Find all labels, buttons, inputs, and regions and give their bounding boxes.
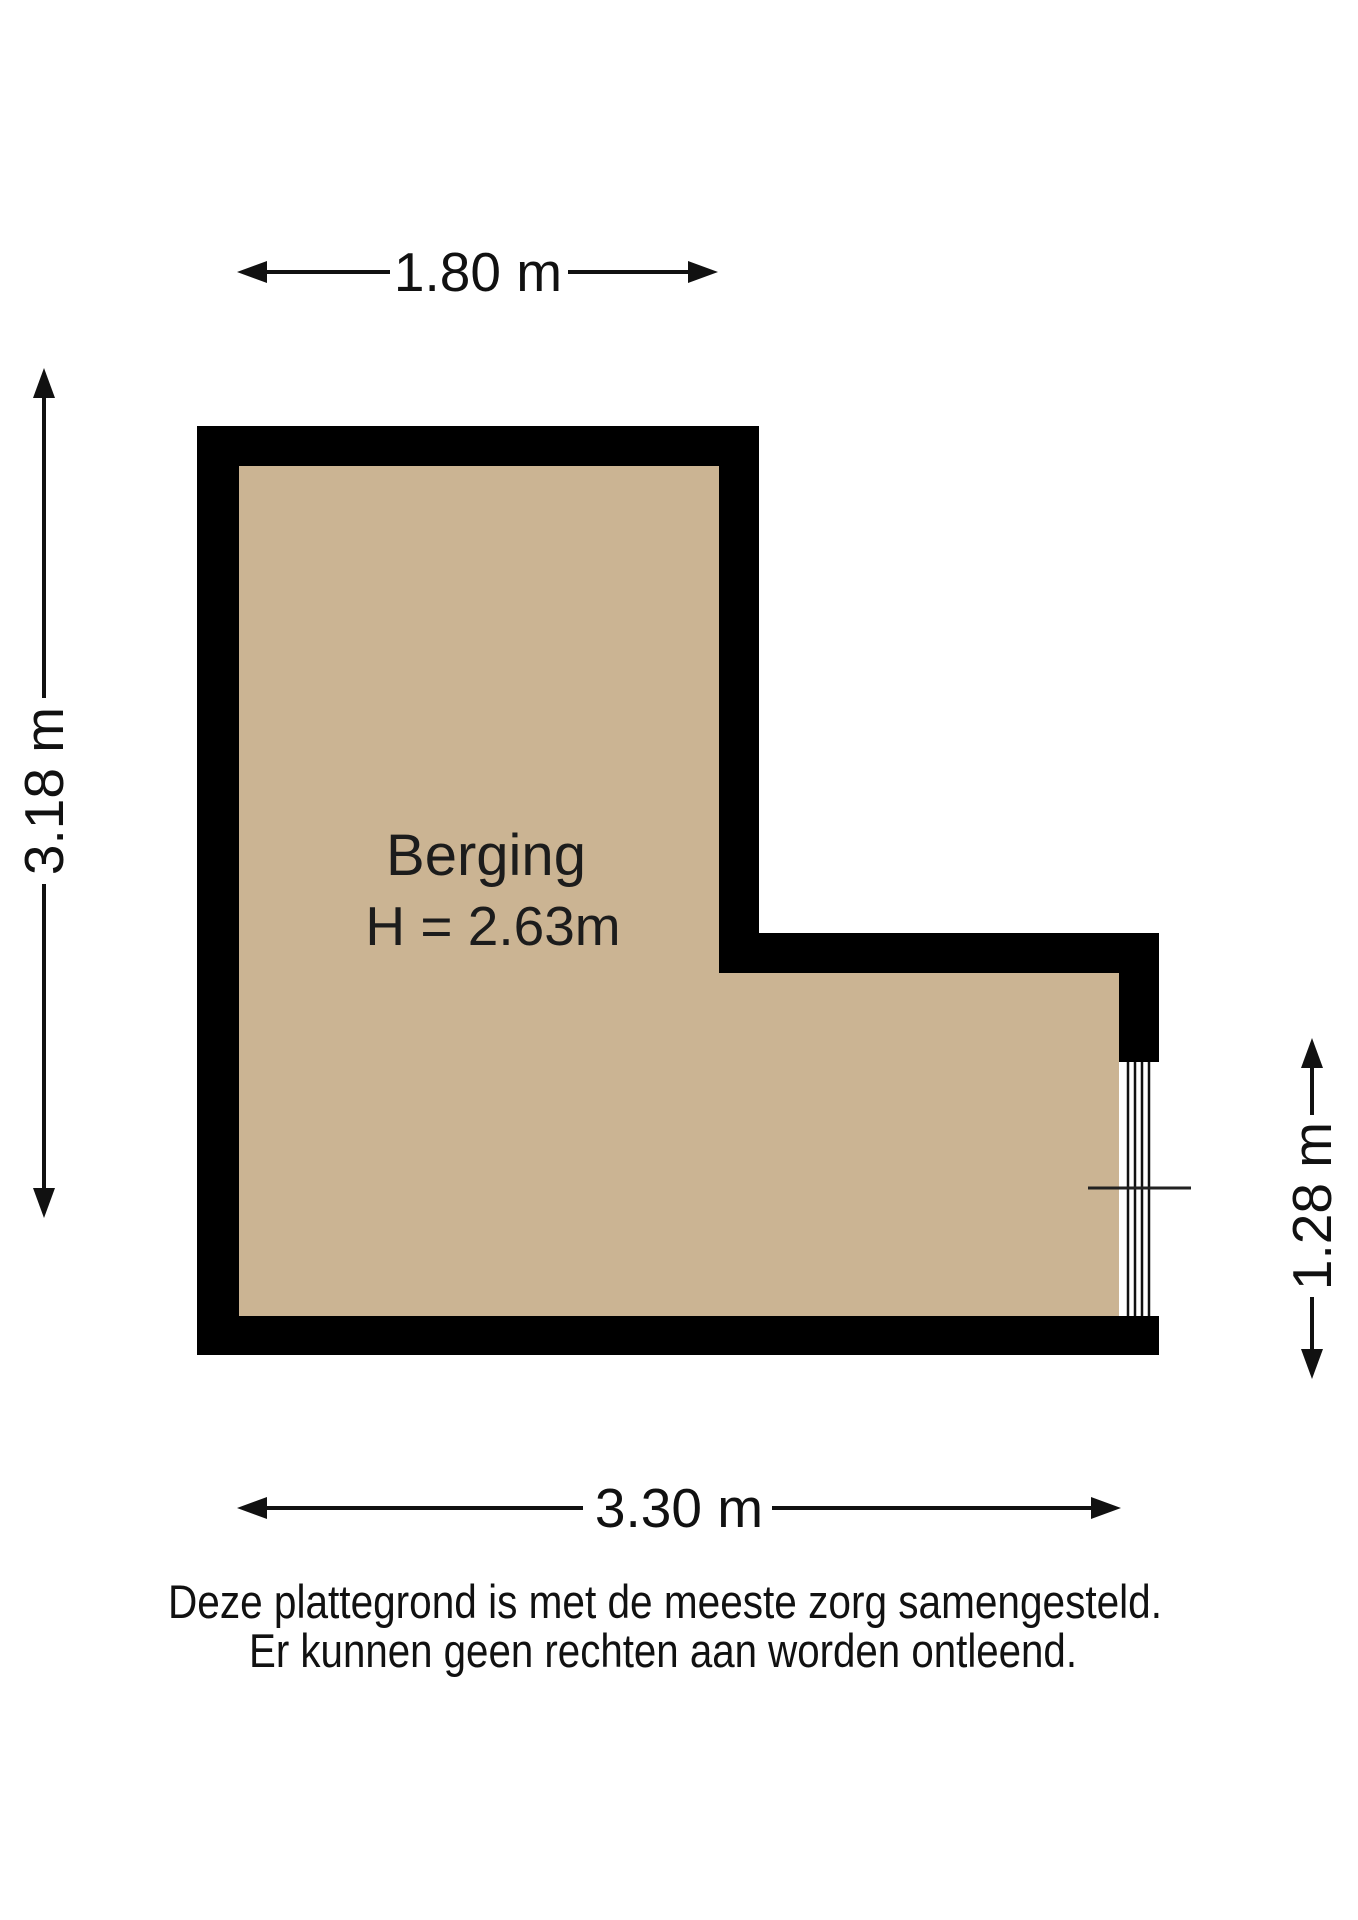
dimension-top-arrowhead-right bbox=[688, 261, 718, 283]
dimension-left-label: 3.18 m bbox=[13, 707, 75, 875]
dimension-right-arrowhead-bottom bbox=[1301, 1349, 1323, 1379]
floorplan-canvas: 1.80 m 3.18 m 1.28 m 3.30 m bbox=[0, 0, 1358, 1920]
dimension-bottom-label: 3.30 m bbox=[595, 1477, 763, 1539]
dimension-left-arrowhead-bottom bbox=[33, 1188, 55, 1218]
room-floor bbox=[239, 466, 1119, 1316]
dimension-top-arrowhead-left bbox=[237, 261, 267, 283]
disclaimer-line-1: Deze plattegrond is met de meeste zorg s… bbox=[168, 1575, 1162, 1628]
dimension-right: 1.28 m bbox=[1281, 1038, 1343, 1379]
room-name-label: Berging bbox=[386, 823, 586, 888]
disclaimer-line-2: Er kunnen geen rechten aan worden ontlee… bbox=[249, 1624, 1077, 1677]
dimension-top: 1.80 m bbox=[237, 241, 718, 303]
floorplan-svg: 1.80 m 3.18 m 1.28 m 3.30 m bbox=[0, 0, 1358, 1920]
dimension-bottom: 3.30 m bbox=[237, 1477, 1121, 1539]
room-ceiling-height-label: H = 2.63m bbox=[365, 895, 620, 957]
dimension-left-arrowhead-top bbox=[33, 368, 55, 398]
dimension-left: 3.18 m bbox=[13, 368, 75, 1218]
dimension-bottom-arrowhead-left bbox=[237, 1497, 267, 1519]
dimension-top-label: 1.80 m bbox=[394, 241, 562, 303]
dimension-right-arrowhead-top bbox=[1301, 1038, 1323, 1068]
dimension-bottom-arrowhead-right bbox=[1091, 1497, 1121, 1519]
dimension-right-label: 1.28 m bbox=[1281, 1122, 1343, 1290]
